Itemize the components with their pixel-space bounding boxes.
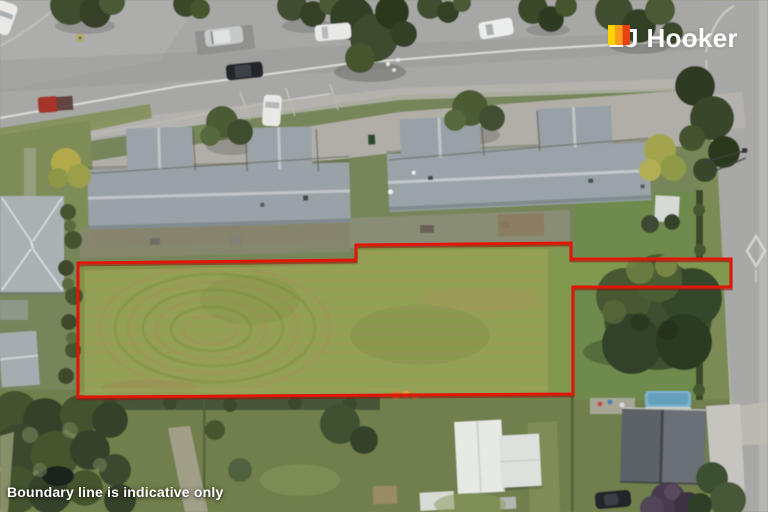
left-garage (0, 331, 40, 388)
lj-hooker-stripes-icon (608, 25, 630, 45)
parked-car-dark (594, 489, 631, 509)
boundary-disclaimer: Boundary line is indicative only (7, 484, 223, 500)
car-white-parked (262, 94, 282, 126)
garden-shed (373, 486, 398, 505)
wheelie-bin (368, 134, 375, 144)
car-white-1 (314, 22, 351, 41)
fence-line-2 (571, 396, 574, 512)
swimming-pool (645, 391, 691, 408)
dark-shed (620, 408, 706, 484)
agency-logo: LJ Hooker (608, 25, 738, 51)
aerial-scene (0, 0, 768, 512)
photo-layer (0, 0, 768, 512)
aerial-property-photo: LJ Hooker Boundary line is indicative on… (0, 0, 768, 512)
